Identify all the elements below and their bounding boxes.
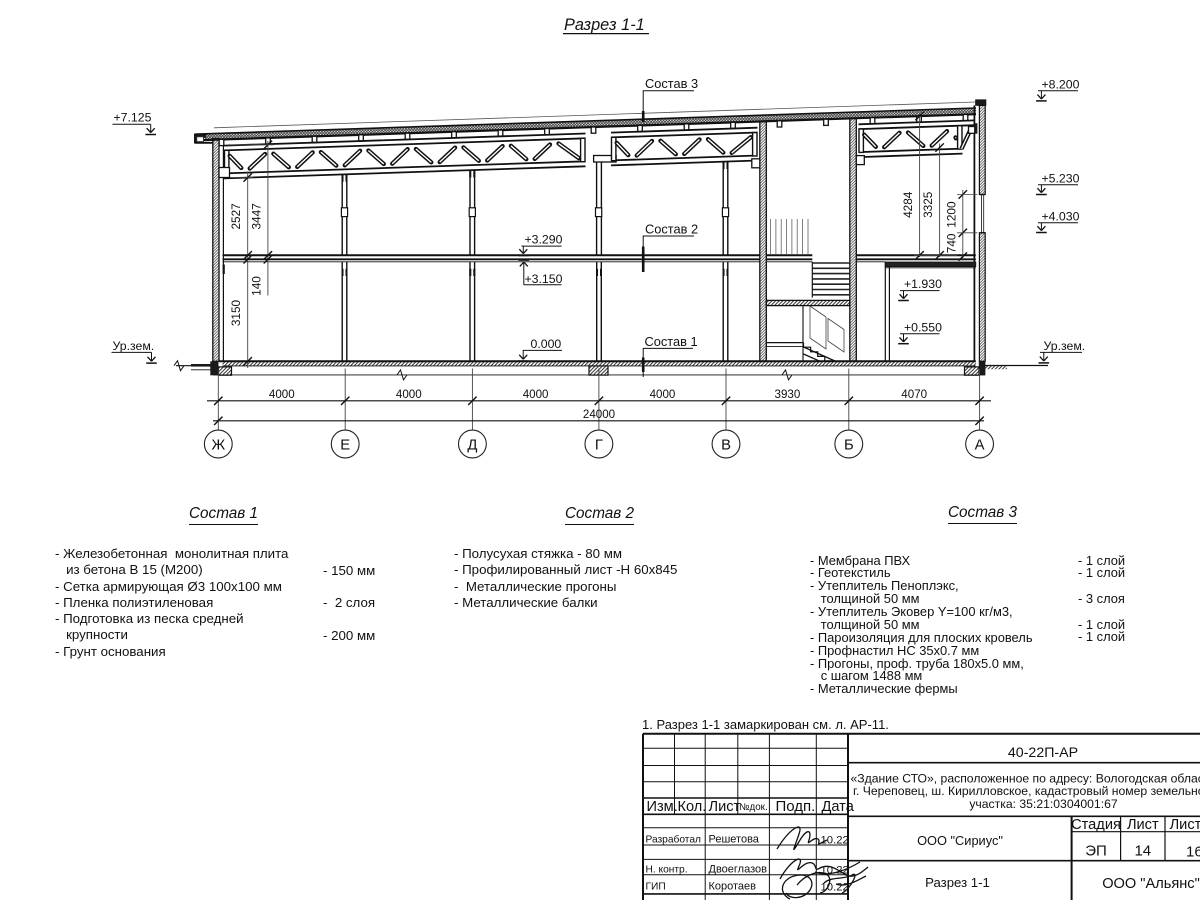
svg-text:Ж: Ж	[211, 437, 225, 453]
svg-text:ООО "Альянс": ООО "Альянс"	[1102, 876, 1200, 892]
svg-text:№док.: №док.	[739, 802, 768, 813]
svg-text:16: 16	[1186, 844, 1200, 861]
svg-text:В: В	[721, 437, 731, 453]
svg-text:Листов: Листов	[1170, 817, 1200, 833]
svg-text:0.000: 0.000	[531, 337, 562, 351]
svg-text:Изм.: Изм.	[647, 799, 678, 815]
svg-text:3447: 3447	[250, 203, 264, 229]
svg-text:140: 140	[250, 276, 264, 296]
svg-text:14: 14	[1134, 843, 1151, 860]
svg-text:Лист: Лист	[1127, 817, 1159, 833]
svg-text:Кол.: Кол.	[678, 799, 707, 815]
svg-text:4000: 4000	[396, 388, 422, 401]
svg-text:Е: Е	[340, 437, 350, 453]
svg-text:Ур.зем.: Ур.зем.	[113, 339, 155, 353]
svg-text:3325: 3325	[921, 191, 935, 218]
svg-text:4000: 4000	[650, 388, 676, 401]
svg-text:740: 740	[944, 233, 958, 253]
svg-text:3150: 3150	[229, 299, 243, 326]
svg-text:Состав 3: Состав 3	[645, 76, 698, 91]
svg-text:+4.030: +4.030	[1042, 209, 1080, 223]
svg-text:+0.550: +0.550	[904, 320, 942, 334]
svg-text:4000: 4000	[523, 388, 549, 401]
svg-text:+3.150: +3.150	[525, 272, 563, 286]
svg-text:Ур.зем.: Ур.зем.	[1044, 339, 1086, 353]
svg-text:40-22П-АР: 40-22П-АР	[1008, 745, 1078, 761]
svg-text:ООО "Сириус": ООО "Сириус"	[917, 833, 1003, 848]
svg-text:Д: Д	[467, 437, 477, 453]
svg-text:4284: 4284	[901, 191, 915, 218]
svg-text:Решетова: Решетова	[709, 834, 760, 846]
svg-text:+3.290: +3.290	[525, 233, 563, 247]
svg-text:1200: 1200	[944, 201, 958, 228]
svg-text:ЭП: ЭП	[1085, 843, 1107, 860]
svg-text:ГИП: ГИП	[646, 882, 666, 893]
svg-text:Разрез 1-1: Разрез 1-1	[564, 16, 645, 34]
svg-text:+8.200: +8.200	[1042, 77, 1080, 91]
svg-text:+1.930: +1.930	[904, 277, 942, 291]
svg-text:4070: 4070	[901, 388, 927, 401]
svg-text:Подп.: Подп.	[776, 798, 816, 815]
svg-text:Разработал: Разработал	[646, 834, 702, 846]
svg-text:+5.230: +5.230	[1042, 171, 1080, 185]
svg-text:2527: 2527	[229, 203, 243, 229]
svg-text:24000: 24000	[583, 408, 615, 421]
svg-text:Лист: Лист	[709, 799, 741, 815]
svg-text:3930: 3930	[775, 388, 801, 401]
svg-text:Состав 1: Состав 1	[645, 334, 698, 349]
svg-text:Разрез 1-1: Разрез 1-1	[925, 875, 990, 890]
svg-text:А: А	[975, 437, 985, 453]
svg-text:Дата: Дата	[822, 799, 855, 815]
svg-text:Состав 2: Состав 2	[645, 221, 698, 236]
svg-text:4000: 4000	[269, 388, 295, 401]
svg-text:Двоеглазов: Двоеглазов	[709, 864, 768, 876]
svg-text:Стадия: Стадия	[1071, 817, 1121, 833]
svg-text:+7.125: +7.125	[114, 111, 152, 125]
svg-text:Н. контр.: Н. контр.	[646, 865, 688, 876]
svg-text:Коротаев: Коротаев	[709, 881, 757, 893]
svg-text:Г: Г	[595, 437, 603, 453]
svg-text:участка: 35:21:0304001:67: участка: 35:21:0304001:67	[969, 797, 1118, 811]
svg-text:Б: Б	[844, 437, 854, 453]
